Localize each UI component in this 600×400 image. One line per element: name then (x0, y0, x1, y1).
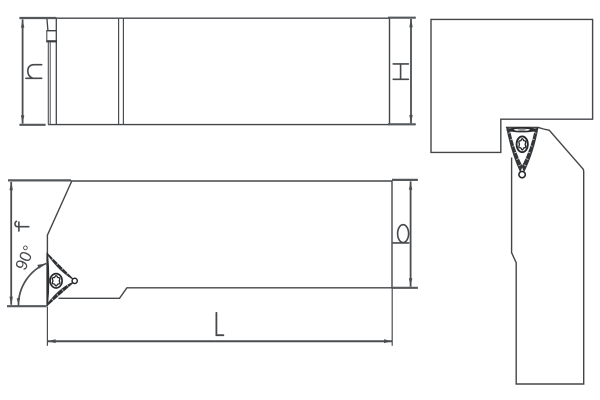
svg-text:90°: 90° (12, 243, 39, 273)
